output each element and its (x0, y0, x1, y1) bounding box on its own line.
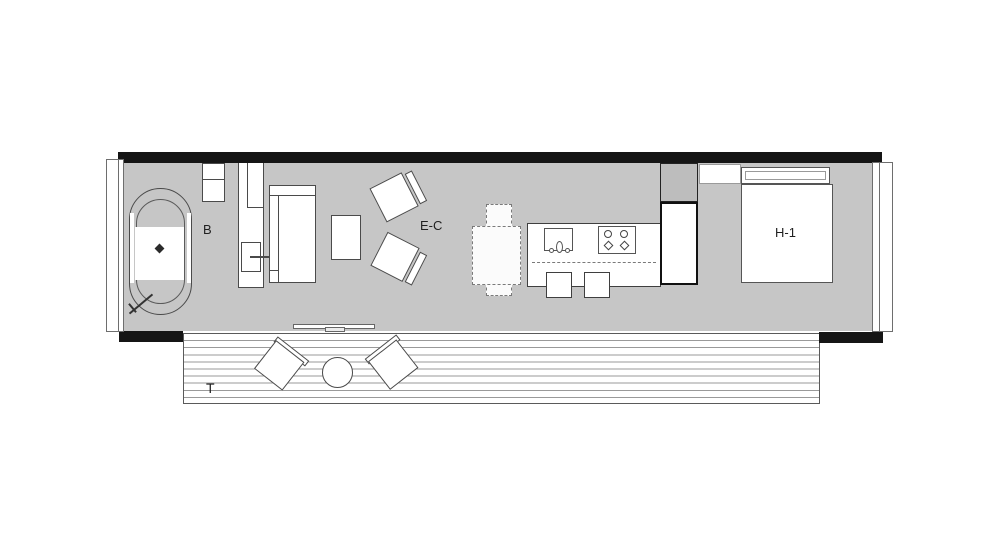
partition-upper-shelf (247, 161, 263, 208)
window-left (106, 159, 124, 332)
label-bathroom: B (203, 223, 212, 237)
stove-burner-icon (620, 230, 628, 238)
closet-block (660, 163, 698, 202)
stove (598, 226, 636, 254)
wall-bottom-right (819, 332, 883, 343)
sofa-seat-line (270, 270, 278, 271)
bathtub-side-bar-left (130, 213, 134, 283)
vanity-fixture (241, 242, 261, 272)
partition-storage-wall (238, 160, 264, 288)
bathtub-mat (135, 227, 184, 280)
sofa (269, 185, 316, 283)
sliding-door-leaf (325, 327, 345, 332)
bath-cabinet (202, 163, 225, 202)
nightstand-shelf (699, 164, 741, 184)
dining-table-dashed (472, 226, 521, 285)
label-bedroom: H-1 (775, 226, 796, 240)
bathtub (129, 188, 192, 315)
tall-cabinet (660, 202, 698, 285)
window-right (872, 162, 893, 332)
window-left-mullion (118, 160, 119, 331)
sofa-back-line (270, 195, 315, 196)
floor-plan: B E-C H-1 (0, 0, 1000, 542)
kitchen-stool (584, 272, 610, 298)
window-right-mullion (879, 163, 880, 331)
kitchen-island-counter-line (532, 262, 656, 263)
sink-knob-left-icon (549, 248, 554, 253)
sink-knob-right-icon (565, 248, 570, 253)
bed-headboard-inner (745, 171, 826, 180)
wall-bottom-left (119, 331, 183, 342)
kitchen-stool (546, 272, 572, 298)
label-terrace: T (206, 381, 215, 395)
bathtub-side-bar-right (187, 213, 191, 283)
wall-top (118, 152, 882, 163)
bath-cabinet-divider (203, 179, 224, 180)
coffee-table (331, 215, 361, 260)
stove-burner-icon (604, 230, 612, 238)
label-living-dining: E-C (420, 219, 442, 233)
bed-headboard (741, 167, 830, 184)
sink-faucet-icon (556, 241, 563, 253)
sofa-arm-line (278, 195, 279, 282)
deck-round-table (322, 357, 353, 388)
